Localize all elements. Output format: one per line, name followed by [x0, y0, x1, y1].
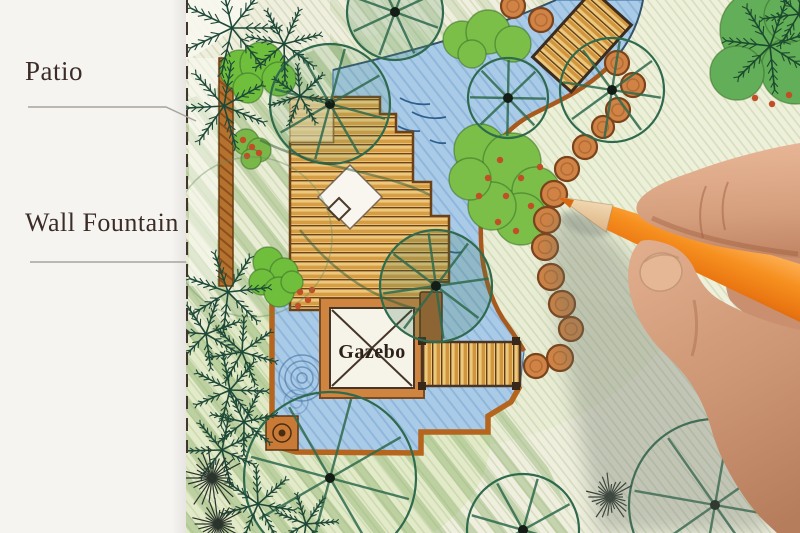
label-wall-fountain: Wall Fountain [25, 209, 179, 238]
paper-edge-shade [172, 0, 186, 533]
pool-corner-ornament [266, 416, 298, 450]
patio-area [189, 58, 217, 286]
boardwalk [422, 342, 520, 386]
photo-landscape-plan: Patio Wall Fountain Gazebo [0, 0, 800, 533]
stepping-stone [555, 157, 579, 181]
stepping-stone [541, 181, 567, 207]
stepping-stone [592, 116, 614, 138]
stepping-stone [501, 0, 525, 18]
plan-drawing [0, 0, 800, 533]
stepping-stone [529, 8, 553, 32]
label-patio: Patio [25, 57, 83, 87]
label-gazebo: Gazebo [331, 341, 413, 363]
stepping-stone [524, 354, 548, 378]
tree [270, 44, 390, 164]
tree [468, 58, 548, 138]
tree [380, 230, 492, 342]
